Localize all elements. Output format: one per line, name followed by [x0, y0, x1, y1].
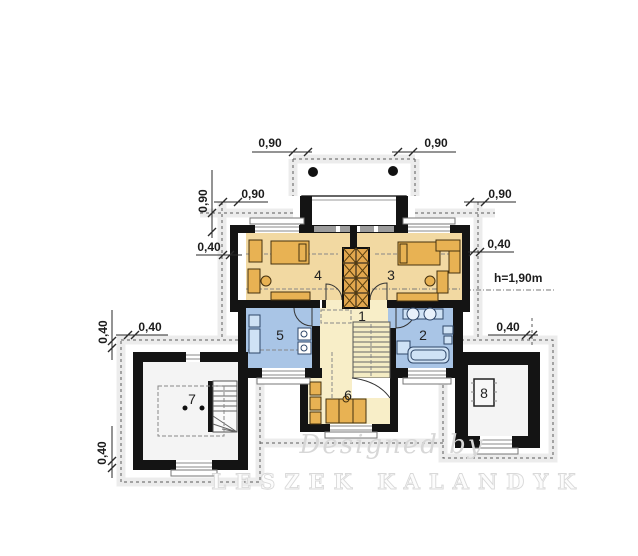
chimney-shaft — [343, 248, 369, 308]
watermark-author: LESZEK KALANDYK — [211, 469, 584, 494]
balcony — [300, 166, 408, 233]
dim-attic-height: h=1,90m — [494, 271, 542, 285]
dim-west-vertical: 0,40 — [96, 320, 110, 344]
room-label-8: 8 — [480, 385, 488, 401]
floor-plan-drawing: 0,90 0,90 0,90 0,90 0,40 0,90 0,40 h=1,9… — [0, 0, 638, 556]
dim-upper-left-vertical: 0,90 — [196, 189, 210, 213]
balcony-column-left — [308, 167, 318, 177]
room-label-2: 2 — [419, 327, 427, 343]
dim-eave-right-lower: 0,40 — [496, 320, 520, 334]
dim-right-upper: 0,90 — [488, 187, 512, 201]
room-label-4: 4 — [314, 267, 322, 283]
dim-eave-left: 0,40 — [197, 240, 221, 254]
room-label-6: 6 — [344, 387, 352, 403]
watermark-designed-by: Designed by — [299, 430, 485, 460]
dim-southwest-vertical: 0,40 — [95, 441, 109, 465]
wing-staircase — [213, 381, 237, 432]
dim-west-horizontal: 0,40 — [138, 320, 162, 334]
room-label-7: 7 — [188, 391, 196, 407]
room-label-3: 3 — [387, 267, 395, 283]
dim-eave-right: 0,40 — [487, 237, 511, 251]
floor-plan-page: 0,90 0,90 0,90 0,90 0,40 0,90 0,40 h=1,9… — [0, 0, 638, 556]
room-label-5: 5 — [276, 327, 284, 343]
dim-balcony-right: 0,90 — [424, 136, 448, 150]
dim-upper-left-horizontal: 0,90 — [241, 187, 265, 201]
main-staircase — [352, 322, 390, 398]
balcony-column-right — [388, 166, 398, 176]
dim-balcony-left: 0,90 — [258, 136, 282, 150]
room-label-1: 1 — [358, 308, 366, 324]
